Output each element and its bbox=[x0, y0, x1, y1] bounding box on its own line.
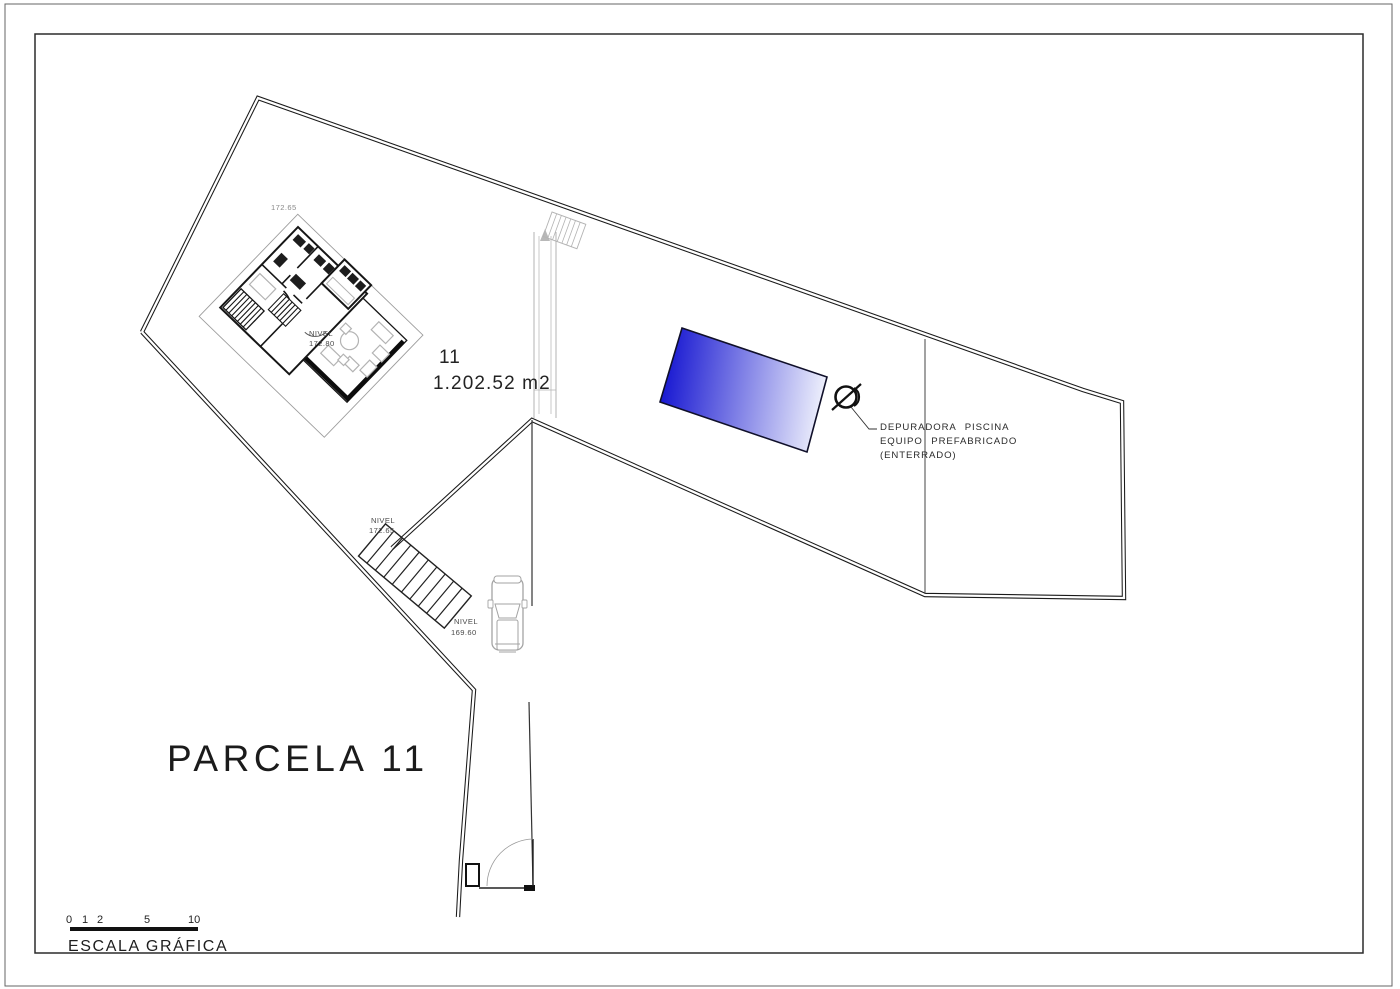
terrace-spot-level-label: 172.65 bbox=[271, 203, 297, 212]
scale-bar: 0 1 2 5 10 ESCALA GRÁFICA bbox=[66, 914, 228, 955]
gate-post bbox=[466, 864, 479, 886]
gate-door-arc bbox=[487, 839, 533, 886]
scale-tick-10: 10 bbox=[188, 914, 200, 926]
house-level-label: NIVEL bbox=[309, 329, 333, 338]
site-plan-canvas: 172.65 NIVEL 172.80 NIVEL 172.65 NIVEL 1… bbox=[0, 0, 1400, 989]
scale-tick-5: 5 bbox=[144, 914, 150, 926]
scale-tick-0: 0 bbox=[66, 914, 72, 926]
parcel-title: PARCELA 11 bbox=[167, 738, 429, 779]
upper-level-label: NIVEL bbox=[371, 516, 395, 525]
scale-bar-rule bbox=[70, 927, 198, 931]
parcel-area-label: 1.202.52 m2 bbox=[433, 373, 551, 394]
parcel-number-label: 11 bbox=[439, 347, 461, 368]
upper-level-value: 172.65 bbox=[369, 526, 395, 535]
scale-bar-label: ESCALA GRÁFICA bbox=[68, 936, 228, 955]
exterior-stairs bbox=[359, 524, 472, 628]
pool-note-leader bbox=[851, 407, 877, 429]
house-plan bbox=[199, 214, 423, 437]
plot-boundary-drive bbox=[142, 332, 474, 917]
pool-note-line3: (ENTERRADO) bbox=[880, 450, 957, 461]
house-level-value: 172.80 bbox=[309, 339, 335, 348]
top-steps-hatch bbox=[543, 212, 586, 249]
drive-level-label: NIVEL bbox=[454, 617, 478, 626]
plot-boundary bbox=[142, 98, 1124, 917]
pool-filter-symbol bbox=[832, 384, 861, 410]
pool-note-line2: EQUIPO PREFABRICADO bbox=[880, 436, 1017, 447]
car-icon bbox=[488, 576, 527, 652]
drive-level-value: 169.60 bbox=[451, 628, 477, 637]
scale-tick-2: 2 bbox=[97, 914, 103, 926]
swimming-pool bbox=[660, 328, 827, 452]
pool-note-line1: DEPURADORA PISCINA bbox=[880, 422, 1009, 433]
scale-tick-1: 1 bbox=[82, 914, 88, 926]
site-plan-page: 172.65 NIVEL 172.80 NIVEL 172.65 NIVEL 1… bbox=[0, 0, 1400, 989]
entrance-gate bbox=[466, 839, 535, 891]
